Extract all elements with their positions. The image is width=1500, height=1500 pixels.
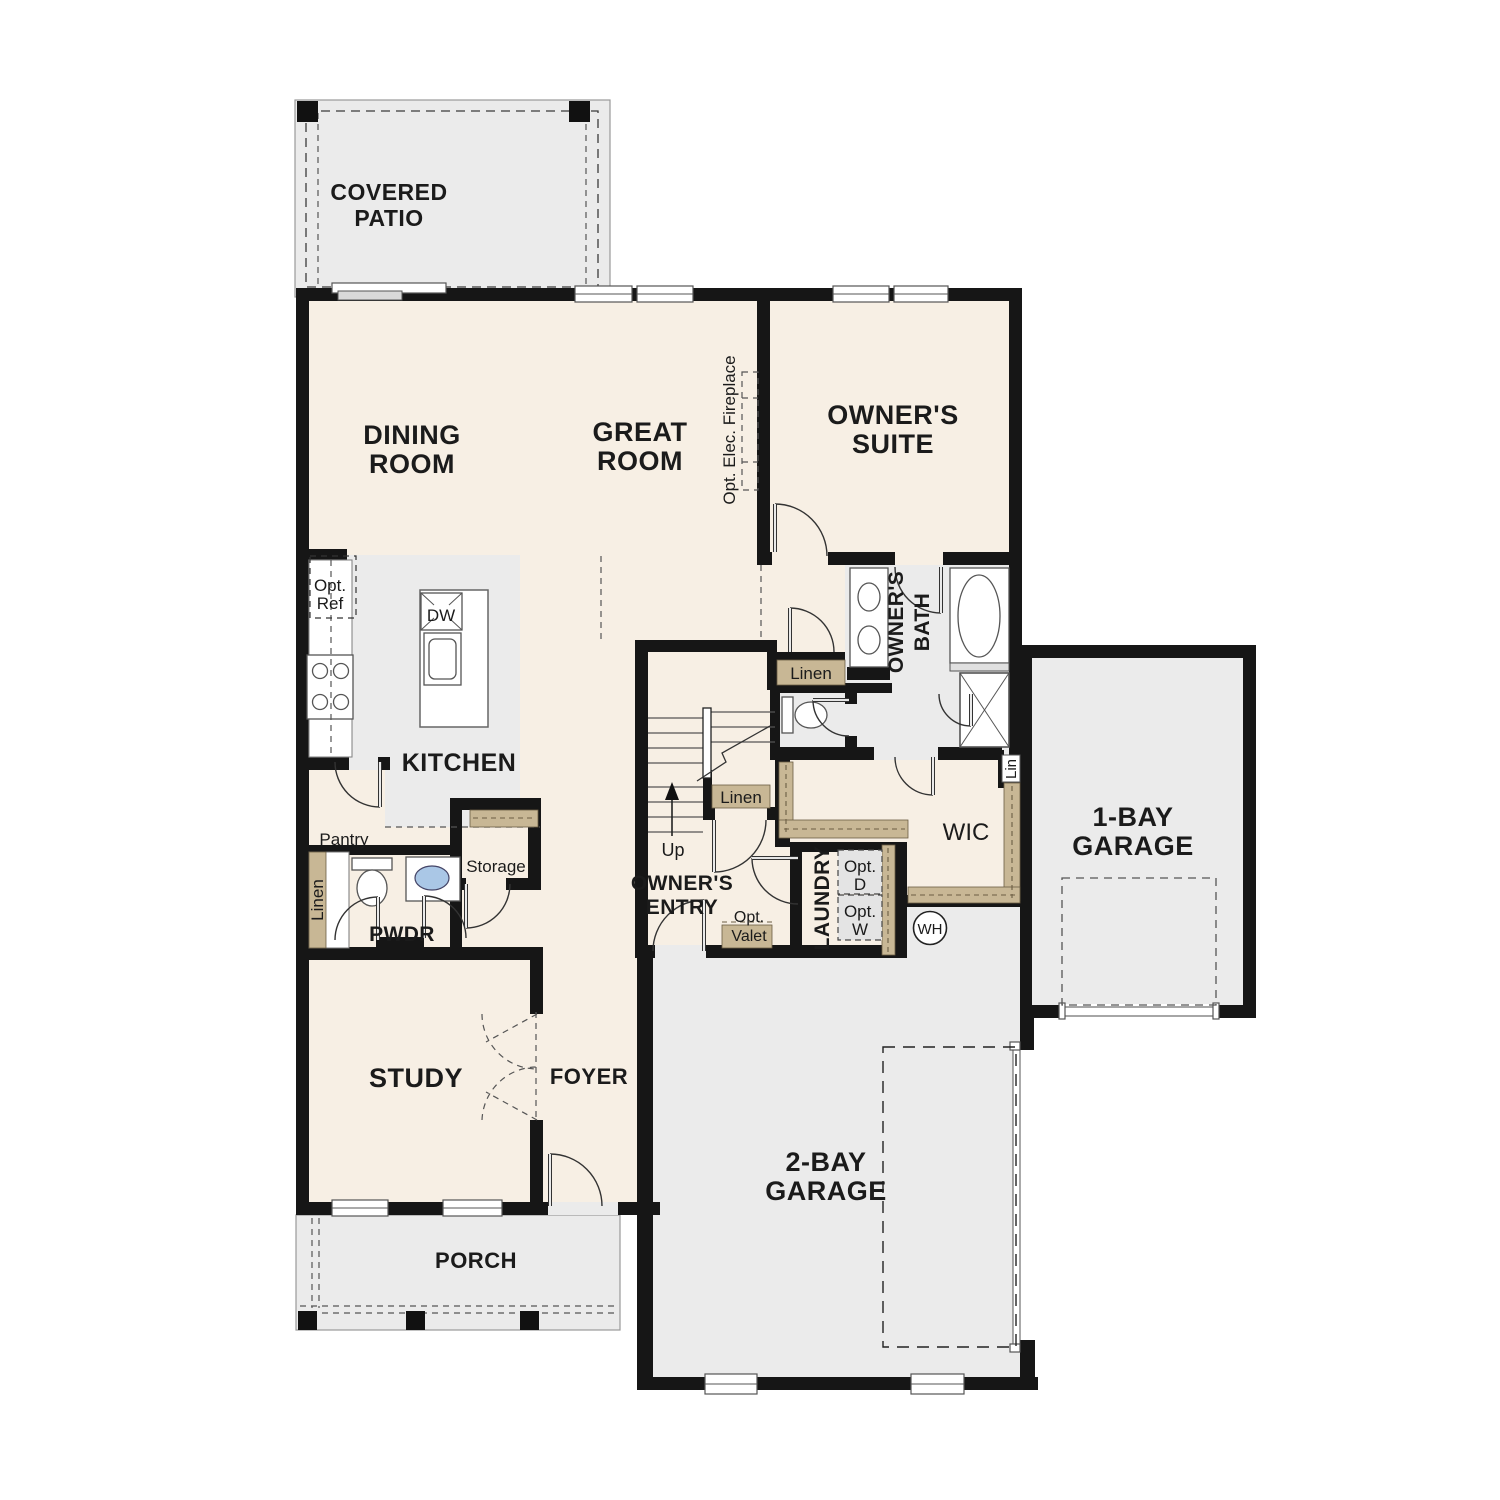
owners-suite-label: SUITE [852, 429, 934, 459]
opt-d-label: D [854, 875, 866, 894]
great-room-label: GREAT [593, 417, 688, 447]
opt-w-label: Opt. [844, 902, 876, 921]
two-bay-garage-label: 2-BAY [785, 1147, 866, 1177]
pantry-label: Pantry [319, 830, 369, 849]
covered-patio-label: PATIO [354, 205, 423, 231]
opt-ref-label: Opt. [314, 576, 346, 595]
stair-railing [703, 708, 711, 778]
owners-bath-label: BATH [911, 593, 934, 651]
one-bay-garage-label: 1-BAY [1092, 802, 1173, 832]
linen-left-label: Linen [308, 879, 327, 921]
pwdr-sink-fixture [406, 857, 460, 901]
tub-fixture [950, 568, 1009, 671]
linen-hall-label: Linen [790, 664, 832, 683]
owners-entry-label: ENTRY [646, 896, 718, 919]
porch-post [298, 1311, 317, 1330]
linen-stairs-label: Linen [720, 788, 762, 807]
dw-label: DW [427, 606, 455, 625]
great-room-label: ROOM [597, 446, 683, 476]
opt-d-label: Opt. [844, 857, 876, 876]
porch-post [406, 1311, 425, 1330]
dining-room-label: DINING [363, 420, 461, 450]
owners-bath-label: OWNER'S [885, 571, 908, 673]
patio-post [297, 101, 318, 122]
opt-valet-label: Valet [731, 928, 767, 945]
owners-suite-label: OWNER'S [827, 400, 958, 430]
stove-fixture [307, 655, 353, 719]
opt-valet-label: Opt. [734, 909, 764, 926]
study-label: STUDY [369, 1063, 463, 1093]
dining-room-label: ROOM [369, 449, 455, 479]
lin-wic-label: Lin [1003, 759, 1020, 779]
front-door-opening [548, 1202, 618, 1215]
kitchen-label: KITCHEN [402, 749, 517, 777]
vanity-fixture [850, 568, 888, 667]
wic-label: WIC [943, 819, 990, 846]
laundry-label: LAUNDRY [811, 846, 834, 951]
room-pantry-floor [309, 770, 385, 827]
opt-w-label: W [852, 920, 868, 939]
wh-label: WH [918, 921, 943, 938]
foyer-label: FOYER [550, 1064, 628, 1089]
floor-plan-drawing: COVERED PATIO DINING ROOM GREAT ROOM OWN… [0, 0, 1500, 1500]
one-bay-garage-label: GARAGE [1072, 831, 1194, 861]
garage-entry-opening [655, 945, 706, 958]
covered-patio-label: COVERED [330, 179, 447, 205]
porch-label: PORCH [435, 1248, 517, 1273]
pwdr-label: PWDR [369, 923, 435, 946]
opt-fireplace-label: Opt. Elec. Fireplace [720, 355, 739, 504]
shower-fixture [960, 673, 1009, 747]
up-label: Up [661, 840, 684, 860]
floor-plan-page: COVERED PATIO DINING ROOM GREAT ROOM OWN… [0, 0, 1500, 1500]
storage-label: Storage [466, 857, 526, 876]
patio-post [569, 101, 590, 122]
owners-entry-label: OWNER'S [631, 872, 733, 895]
porch-post [520, 1311, 539, 1330]
opt-ref-label: Ref [317, 594, 344, 613]
two-bay-garage-label: GARAGE [765, 1176, 887, 1206]
